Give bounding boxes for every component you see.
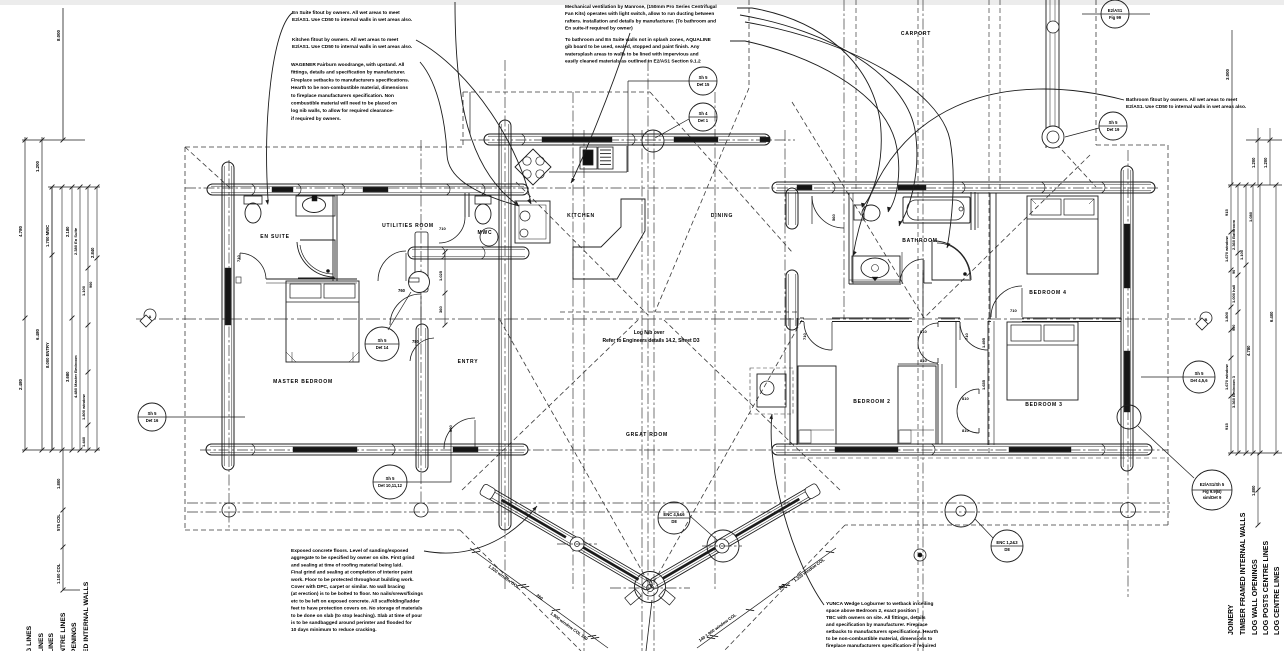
svg-text:log nib walls, to allow for re: log nib walls, to allow for required cle… [291,108,394,114]
svg-text:rafters. Installation and deta: rafters. Installation and details by man… [565,18,716,24]
svg-text:560: 560 [831,214,836,221]
svg-text:setbacks to manufacturers spec: setbacks to manufacturers specifications… [826,629,938,635]
svg-text:CARPORT: CARPORT [901,31,931,37]
svg-text:1.200: 1.200 [1251,157,1256,168]
svg-text:Sh 5: Sh 5 [1109,120,1119,125]
svg-text:Det 1: Det 1 [698,118,709,123]
svg-text:En Suite fitout by owners. All: En Suite fitout by owners. All wet areas… [292,10,400,16]
svg-text:1.670 window: 1.670 window [1224,235,1229,262]
svg-text:Fig 9.9(B): Fig 9.9(B) [1202,489,1222,494]
svg-text:DINING: DINING [711,213,733,219]
svg-text:4.780: 4.780 [1246,345,1251,356]
svg-text:B: B [1205,317,1208,322]
svg-text:2.360 Bathroom: 2.360 Bathroom [1231,220,1236,250]
svg-text:(at erection) is to be bolted: (at erection) is to be bolted to floor. … [291,591,423,597]
svg-text:E2/AS1. Use CD50 to internal w: E2/AS1. Use CD50 to internal walls in we… [292,44,412,50]
svg-text:GREAT ROOM: GREAT ROOM [626,432,668,438]
svg-text:915: 915 [1224,423,1229,430]
svg-text:Det 4,5,6: Det 4,5,6 [1190,378,1208,383]
svg-text:Det 15: Det 15 [697,82,710,87]
svg-text:LOG WALL OPENINGS: LOG WALL OPENINGS [1252,559,1259,635]
svg-text:915: 915 [1224,209,1229,216]
svg-text:Refer to Engineers details 14.: Refer to Engineers details 14.2, Sheet D… [603,338,700,344]
svg-text:watersplash areas to walls to: watersplash areas to walls to be lined w… [564,51,699,57]
svg-text:990: 990 [448,425,453,432]
svg-text:En suite-if required by owner): En suite-if required by owner) [565,26,633,32]
svg-text:feet to have protection covers: feet to have protection covers on. No st… [291,606,423,612]
svg-text:KITCHEN: KITCHEN [567,213,595,219]
svg-text:To bathroom and En Suite walls: To bathroom and En Suite walls not in sp… [565,37,712,43]
svg-text:etc to be left on exposed conc: etc to be left on exposed concrete. All … [291,598,420,604]
svg-text:1.080: 1.080 [1248,211,1253,222]
svg-text:ENTRY: ENTRY [458,359,479,365]
svg-text:WAGENER Fairburn woodrange, wi: WAGENER Fairburn woodrange, with upstand… [291,62,404,68]
svg-text:4.780: 4.780 [18,225,23,237]
svg-text:G LINES: G LINES [26,625,33,651]
svg-text:90: 90 [1232,270,1236,274]
svg-text:to fireplace manufacturers spe: to fireplace manufacturers specification… [291,93,394,99]
svg-text:810: 810 [920,358,927,363]
svg-text:1.200: 1.200 [35,160,40,172]
svg-text:ED INTERNAL WALLS: ED INTERNAL WALLS [83,581,90,651]
svg-text:LOG CENTRE LINES: LOG CENTRE LINES [1274,566,1281,635]
svg-text:E2/AS1/Sh 5: E2/AS1/Sh 5 [1200,482,1225,487]
svg-text:fireplace manufacturers specif: fireplace manufacturers specification-if… [826,643,936,649]
svg-text:1.800: 1.800 [56,478,61,489]
svg-text:to be done on slab (to stop le: to be done on slab (to stop leaching). S… [291,613,422,619]
svg-text:Kitchen fitout by owners. All: Kitchen fitout by owners. All wet areas … [292,37,399,43]
svg-text:710: 710 [964,333,969,340]
svg-text:MASTER BEDROOM: MASTER BEDROOM [273,379,333,385]
svg-text:Cover with DPC, carpet or simi: Cover with DPC, carpet or similar. No wa… [291,584,405,590]
svg-text:Sh 5: Sh 5 [1195,371,1205,376]
svg-text:and specification by manufactu: and specification by manufacturer. Firep… [826,622,928,628]
svg-text:D8: D8 [1004,547,1010,552]
svg-text:JOINERY: JOINERY [1228,604,1235,635]
svg-text:easily cleaned materials as ou: easily cleaned materials as outlined in … [565,59,701,65]
svg-text:aggregate to be specified by o: aggregate to be specified by owner on si… [291,555,414,561]
svg-text:space above Bedroom 2, exact p: space above Bedroom 2, exact position [826,608,916,614]
svg-text:ENC 1,2&3: ENC 1,2&3 [996,540,1018,545]
svg-text:Sh 5: Sh 5 [386,476,396,481]
svg-text:gib board to be used, sealed,: gib board to be used, sealed, stopped an… [565,44,700,50]
svg-text:1.025: 1.025 [438,270,443,281]
svg-text:MWC: MWC [478,230,493,236]
svg-text:Mechanical ventilation by Manr: Mechanical ventilation by Manrose, (150m… [565,4,717,10]
svg-text:to be non-combustible material: to be non-combustible material, dimensio… [826,636,932,642]
svg-text:and sealing at time of roofing: and sealing at time of roofing material … [291,562,403,568]
svg-text:Det 14: Det 14 [376,345,389,350]
svg-text:E2/AS1: E2/AS1 [1108,8,1123,13]
svg-text:1.440: 1.440 [81,436,86,447]
svg-text:Fireplace setbacks to manufact: Fireplace setbacks to manufacturers spec… [291,77,409,83]
svg-text:810: 810 [920,329,927,334]
svg-text:2.480: 2.480 [18,378,23,390]
svg-text:1.655: 1.655 [981,379,986,390]
svg-text:760: 760 [398,288,406,293]
svg-text:2.840: 2.840 [90,247,95,258]
svg-text:Exposed concrete floors. Level: Exposed concrete floors. Level of sandin… [291,548,408,554]
svg-text:TBC with owners on site. All f: TBC with owners on site. All fittings, d… [826,615,926,621]
svg-text:900: 900 [89,282,93,288]
svg-text:4.480 Master Bedroom: 4.480 Master Bedroom [73,355,78,398]
svg-text:work. Floor to be protected th: work. Floor to be protected throughout b… [290,577,414,583]
svg-text:combustible material will need: combustible material will need to be pla… [291,101,397,107]
svg-text:710: 710 [1010,308,1017,313]
svg-text:710: 710 [236,255,241,262]
svg-text:Final grind and sealing at com: Final grind and sealing at completion of… [291,570,413,576]
svg-text:BEDROOM 3: BEDROOM 3 [1025,402,1062,408]
svg-text:Sh 5: Sh 5 [148,411,158,416]
svg-text:3.680: 3.680 [65,371,70,382]
svg-text:BEDROOM 2: BEDROOM 2 [853,399,890,405]
svg-text:1.800: 1.800 [1251,485,1256,496]
svg-text:fittings, details and specific: fittings, details and specification by m… [291,70,405,76]
svg-text:3.000: 3.000 [1225,68,1230,80]
svg-text:Sh 5: Sh 5 [699,75,709,80]
svg-text:UTILITIES ROOM: UTILITIES ROOM [382,223,434,229]
svg-text:710: 710 [439,226,446,231]
svg-text:LOG POSTS CENTRE LINES: LOG POSTS CENTRE LINES [1263,541,1270,635]
svg-text:Sh 4: Sh 4 [699,111,709,116]
svg-text:780: 780 [412,339,420,344]
svg-text:sim/Det 9: sim/Det 9 [1203,495,1222,500]
svg-text:PENINGS: PENINGS [71,622,78,651]
svg-text:1.100 COL: 1.100 COL [56,563,61,584]
svg-text:6.400: 6.400 [1269,311,1274,322]
svg-text:8.000 ENTRY: 8.000 ENTRY [45,342,50,368]
svg-text:8.000: 8.000 [56,29,61,41]
svg-text:1.495: 1.495 [981,337,986,348]
svg-text:810: 810 [962,396,969,401]
svg-text:1.800 window: 1.800 window [81,393,86,420]
svg-text:Hearth to be non-combustible m: Hearth to be non-combustible material, d… [291,85,408,91]
svg-text:E2/AS1. Use CD50 to internal w: E2/AS1. Use CD50 to internal walls in we… [1126,104,1246,110]
svg-text:A: A [149,314,152,319]
svg-text:2.380 En Suite: 2.380 En Suite [73,227,78,255]
svg-text:LINES: LINES [48,633,55,651]
svg-text:Fan Kits) operates with light: Fan Kits) operates with light switch, al… [565,11,714,17]
svg-text:1.700 MWC: 1.700 MWC [45,225,50,247]
svg-text:Log Nib over: Log Nib over [634,330,665,336]
svg-text:EN SUITE: EN SUITE [260,234,289,240]
svg-text:NTRE LINES: NTRE LINES [60,612,67,651]
svg-text:Det 10,11,12: Det 10,11,12 [378,483,403,488]
svg-text:1.100: 1.100 [81,285,86,296]
svg-text:Bathroom fitout by owners. All: Bathroom fitout by owners. All wet areas… [1126,97,1238,103]
svg-text:575 COL: 575 COL [56,514,61,531]
svg-text:10 days minimum to reduce crac: 10 days minimum to reduce cracking. [291,627,377,633]
svg-text:Fig 99: Fig 99 [1109,15,1122,20]
svg-text:6.480: 6.480 [35,328,40,340]
svg-text:1.200: 1.200 [1263,157,1268,168]
svg-text:1.000 hall: 1.000 hall [1231,285,1236,303]
svg-text:if required by owners.: if required by owners. [291,116,341,122]
svg-text:D8: D8 [671,519,677,524]
svg-text:3.360 Bedroom 3: 3.360 Bedroom 3 [1231,375,1236,408]
svg-text:1.100: 1.100 [1239,249,1244,260]
svg-text:YUNCA Wedge Logburner to wetba: YUNCA Wedge Logburner to wetback in ceil… [826,601,933,607]
svg-text:BEDROOM 4: BEDROOM 4 [1029,290,1066,296]
svg-text:ENC 4,5&6: ENC 4,5&6 [663,512,685,517]
svg-text:Det 16: Det 16 [146,418,159,423]
svg-text:710: 710 [802,333,807,340]
svg-text:TIMBER FRAMED INTERNAL WALLS: TIMBER FRAMED INTERNAL WALLS [1240,512,1247,635]
svg-text:BATHROOM: BATHROOM [902,238,937,244]
svg-text:810: 810 [962,428,969,433]
svg-text:2.180: 2.180 [65,226,70,237]
svg-text:E2/AS1. Use CD50 to internal w: E2/AS1. Use CD50 to internal walls in we… [292,17,412,23]
svg-text:1.670 window: 1.670 window [1224,363,1229,390]
svg-text:360: 360 [438,306,443,313]
svg-text:Sh 5: Sh 5 [378,338,388,343]
svg-text:LINES: LINES [38,633,45,651]
svg-text:is to be sandbagged around per: is to be sandbagged around perimter and … [291,620,412,626]
svg-text:900: 900 [1232,325,1236,331]
svg-text:Det 19: Det 19 [1107,127,1120,132]
svg-text:1.800: 1.800 [1224,311,1229,322]
